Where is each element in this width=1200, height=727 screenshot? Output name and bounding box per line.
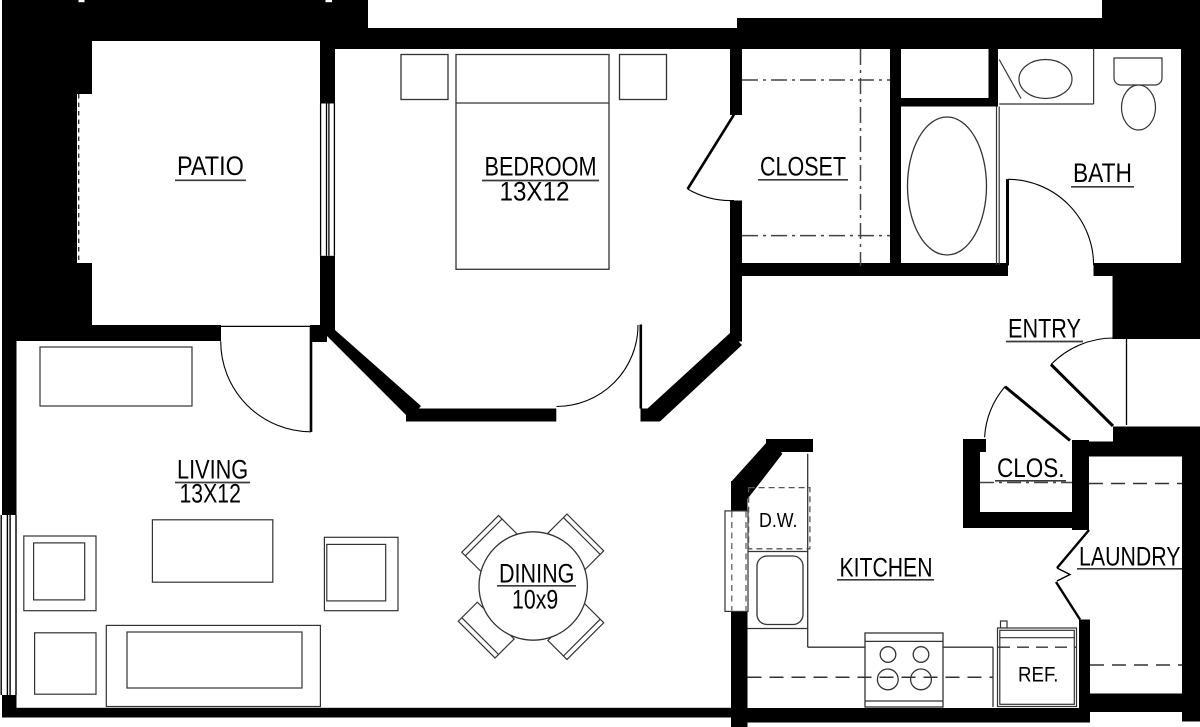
- svg-text:ENTRY: ENTRY: [1008, 314, 1081, 344]
- svg-text:CLOSET: CLOSET: [760, 152, 846, 182]
- svg-text:13X12: 13X12: [180, 479, 241, 509]
- svg-text:D.W.: D.W.: [759, 510, 798, 532]
- svg-text:REF.: REF.: [1018, 664, 1059, 687]
- svg-text:13X12: 13X12: [500, 177, 570, 207]
- svg-text:KITCHEN: KITCHEN: [840, 553, 933, 583]
- svg-text:PATIO: PATIO: [177, 151, 244, 181]
- svg-text:LAUNDRY: LAUNDRY: [1079, 542, 1181, 572]
- svg-text:CLOS.: CLOS.: [997, 453, 1065, 483]
- svg-text:10x9: 10x9: [512, 585, 558, 615]
- svg-text:BATH: BATH: [1073, 158, 1132, 188]
